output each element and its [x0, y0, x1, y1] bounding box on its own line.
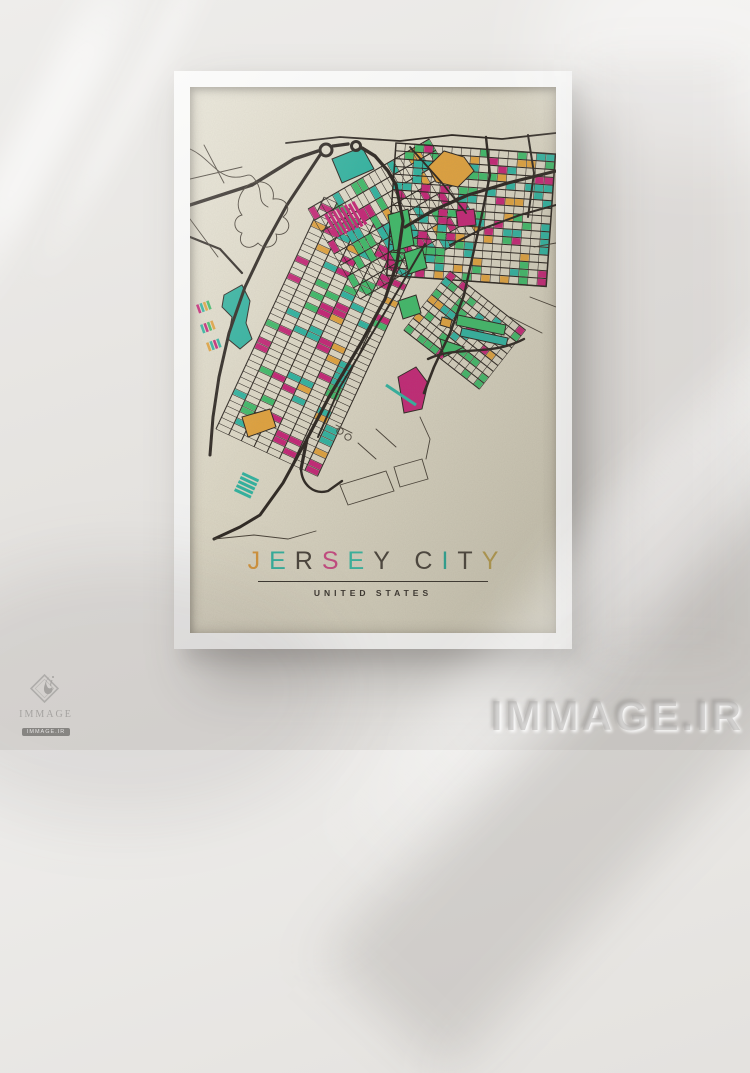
title-letter: Y [373, 547, 398, 575]
title-letter: E [348, 547, 374, 575]
poster: JERSEY CITY UNITED STATES [190, 87, 556, 633]
title-letter: I [441, 547, 457, 575]
title-divider [258, 581, 488, 582]
title-letter: E [269, 547, 295, 575]
title-letter: Y [482, 547, 508, 575]
title-letter: C [414, 547, 441, 575]
title-letter: J [248, 547, 270, 575]
logo-badge: IMMAGE.IR [22, 728, 70, 736]
poster-subtitle: UNITED STATES [190, 588, 556, 598]
watermark-logo: IMMAGE IMMAGE.IR [14, 668, 78, 738]
watermark-text: IMMAGE.IR [491, 692, 744, 740]
logo-flame-diamond-icon [26, 668, 66, 708]
poster-caption: JERSEY CITY UNITED STATES [190, 547, 556, 598]
title-letter: T [457, 547, 481, 575]
title-letter [398, 547, 414, 575]
poster-title: JERSEY CITY [190, 547, 556, 576]
logo-name: IMMAGE [14, 709, 78, 720]
picture-frame: JERSEY CITY UNITED STATES [174, 71, 572, 649]
title-letter: R [295, 547, 322, 575]
title-letter: S [322, 547, 348, 575]
